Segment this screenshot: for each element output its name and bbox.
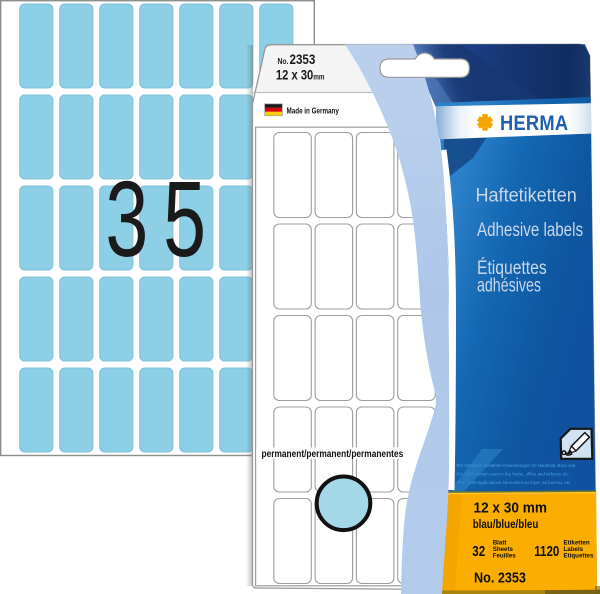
svg-text:HERMA: HERMA [500,112,568,135]
svg-text:Haftetiketten: Haftetiketten [476,184,577,206]
svg-text:Feuilles: Feuilles [493,552,517,559]
svg-text:35: 35 [105,158,220,279]
svg-text:12 x 30 mm: 12 x 30 mm [474,499,547,515]
svg-text:2353: 2353 [290,51,316,67]
svg-text:Etiquettes: Etiquettes [564,552,594,559]
svg-text:32: 32 [472,543,485,560]
svg-text:1120: 1120 [534,543,559,560]
svg-text:adhésives: adhésives [477,275,541,297]
svg-text:No. 2353: No. 2353 [474,570,526,586]
svg-text:No.: No. [278,56,289,66]
svg-text:permanent/permanent/permanente: permanent/permanent/permanentes [262,448,404,460]
svg-text:Adhesive labels: Adhesive labels [477,218,583,240]
svg-text:blau/blue/bleu: blau/blue/bleu [473,519,539,532]
svg-text:Made in Germany: Made in Germany [287,106,340,116]
